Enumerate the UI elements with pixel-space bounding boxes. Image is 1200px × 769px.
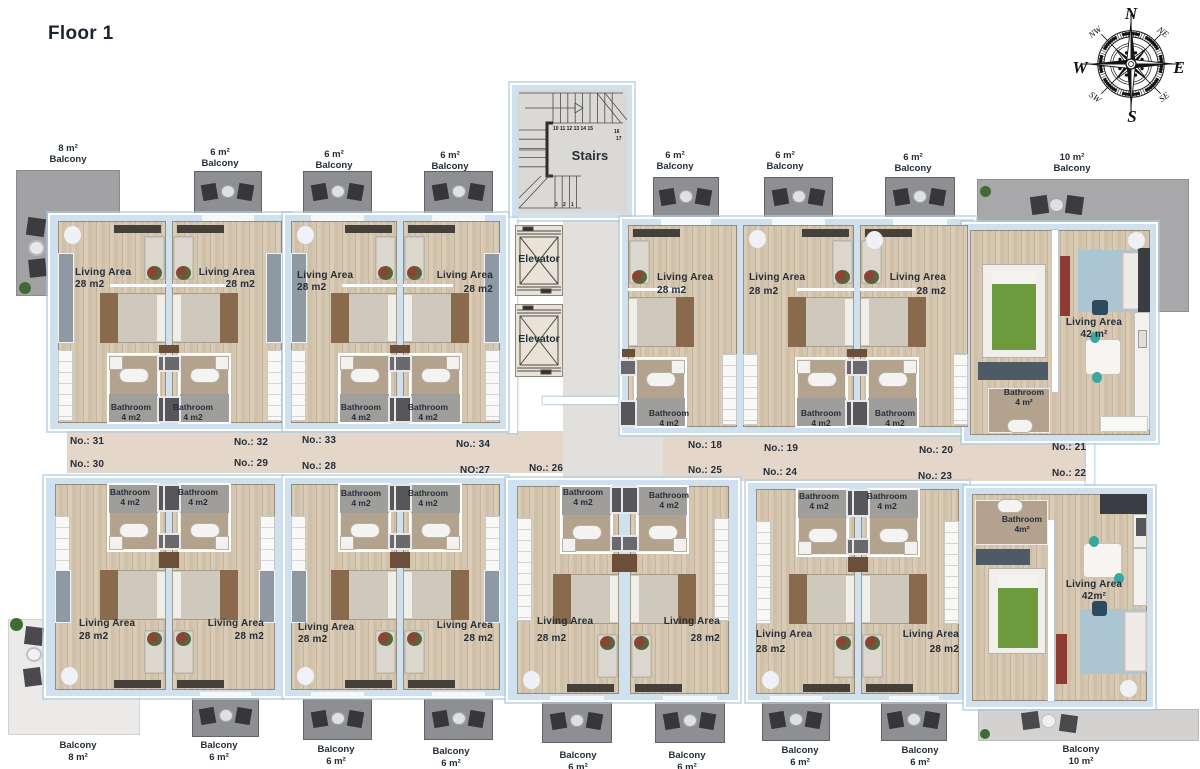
svg-text:10 11 12 13 14 15: 10 11 12 13 14 15 <box>553 126 593 132</box>
svg-text:16: 16 <box>614 129 620 135</box>
svg-text:3: 3 <box>555 202 558 208</box>
svg-text:N: N <box>1124 4 1138 23</box>
svg-text:NW: NW <box>1086 23 1105 41</box>
svg-text:E: E <box>1172 58 1184 77</box>
svg-text:2: 2 <box>563 202 566 208</box>
svg-text:17: 17 <box>616 136 622 142</box>
svg-text:1: 1 <box>571 202 574 208</box>
svg-text:S: S <box>1127 107 1136 126</box>
svg-text:SW: SW <box>1087 89 1104 105</box>
svg-text:W: W <box>1072 58 1089 77</box>
